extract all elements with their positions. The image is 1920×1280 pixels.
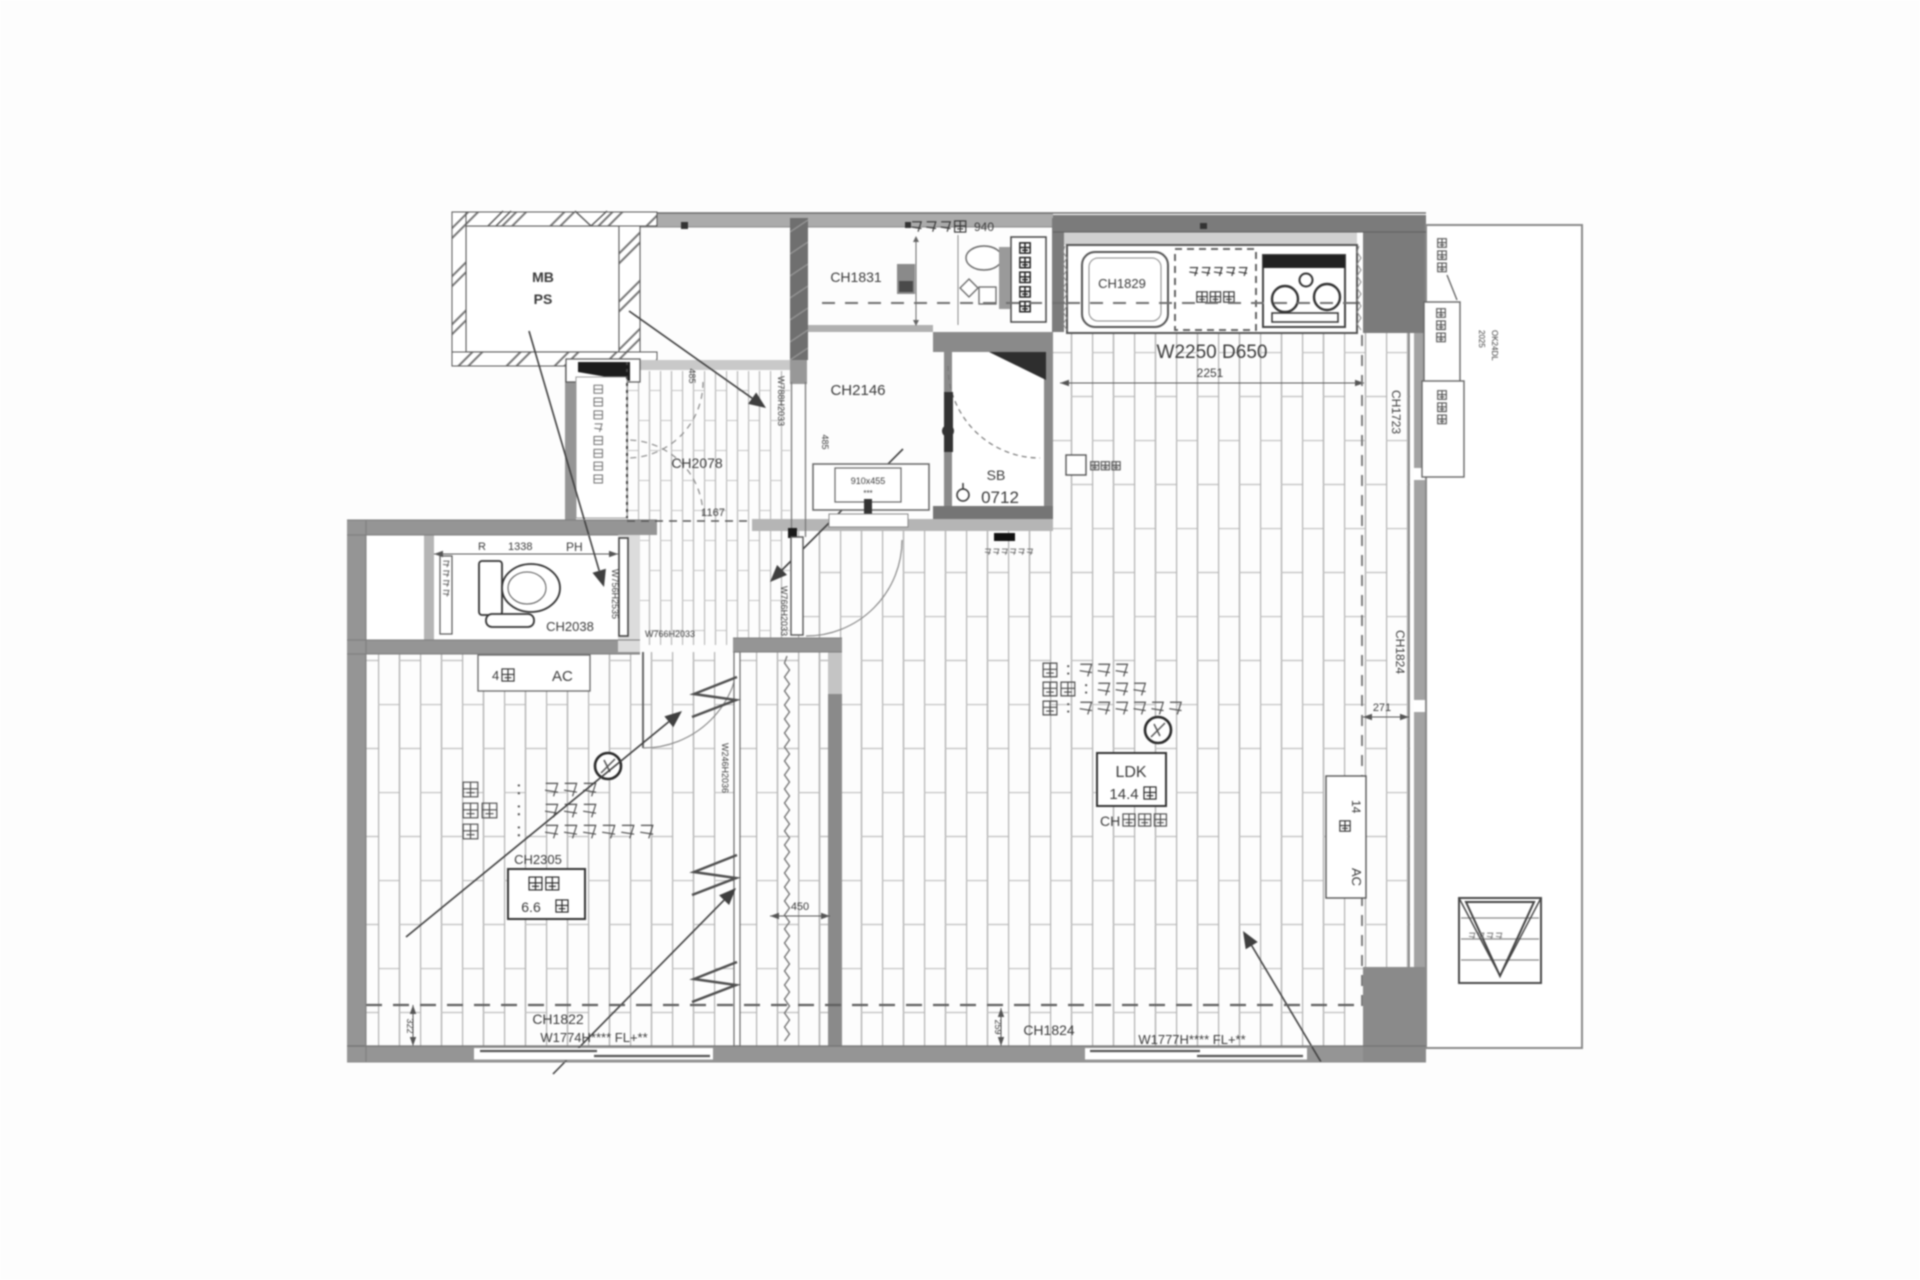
svg-text:LDK: LDK	[1115, 764, 1146, 781]
svg-text:6.6: 6.6	[521, 899, 541, 915]
svg-text:322: 322	[405, 1018, 415, 1033]
svg-text:910x455: 910x455	[851, 476, 886, 486]
svg-text:W1777H**** FL+**: W1777H**** FL+**	[1138, 1032, 1245, 1047]
svg-text:0712: 0712	[981, 488, 1019, 507]
svg-text:CH1831: CH1831	[830, 269, 882, 285]
svg-text:14.4: 14.4	[1109, 786, 1138, 803]
svg-text:W2250 D650: W2250 D650	[1157, 342, 1268, 363]
svg-text:CH: CH	[1100, 813, 1120, 829]
svg-text:2025: 2025	[1477, 330, 1486, 348]
svg-text:CH2146: CH2146	[830, 382, 885, 399]
svg-text:CH2038: CH2038	[546, 619, 594, 634]
svg-text:CH1824: CH1824	[1023, 1022, 1075, 1038]
svg-text:OK24DL: OK24DL	[1490, 330, 1499, 361]
svg-text:CH1824: CH1824	[1393, 630, 1407, 674]
svg-text:SB: SB	[987, 467, 1006, 483]
svg-text:CH2078: CH2078	[671, 455, 723, 471]
svg-text:271: 271	[1373, 702, 1391, 714]
svg-text:1338: 1338	[508, 541, 532, 553]
svg-text:***: ***	[863, 489, 872, 498]
svg-text:940: 940	[974, 220, 994, 234]
svg-text:CH1723: CH1723	[1389, 390, 1403, 434]
svg-text:485: 485	[687, 368, 697, 383]
svg-text:W246H2036: W246H2036	[720, 743, 730, 793]
svg-text:CH2305: CH2305	[514, 852, 562, 867]
svg-text:W756H2535: W756H2535	[610, 569, 620, 619]
svg-text:R: R	[478, 541, 486, 553]
svg-text:W766H2033: W766H2033	[779, 586, 789, 636]
svg-text:CH1829: CH1829	[1098, 276, 1146, 291]
svg-text:PH: PH	[566, 540, 583, 554]
svg-text:PS: PS	[534, 291, 553, 307]
svg-text:W766H2033: W766H2033	[645, 629, 695, 639]
svg-text:AC: AC	[552, 668, 573, 685]
svg-text:MB: MB	[532, 269, 554, 285]
svg-text:W1774H**** FL+**: W1774H**** FL+**	[540, 1030, 647, 1045]
svg-text:2251: 2251	[1197, 366, 1224, 380]
svg-text:CH1822: CH1822	[532, 1011, 584, 1027]
svg-text:AC: AC	[1349, 868, 1364, 886]
svg-text:1167: 1167	[701, 507, 725, 519]
svg-text:259: 259	[993, 1019, 1003, 1034]
svg-text:450: 450	[791, 901, 809, 913]
svg-text:W788H2033: W788H2033	[776, 376, 786, 426]
svg-text:14: 14	[1349, 800, 1363, 814]
svg-text:4: 4	[492, 668, 499, 683]
svg-text:485: 485	[820, 434, 830, 449]
